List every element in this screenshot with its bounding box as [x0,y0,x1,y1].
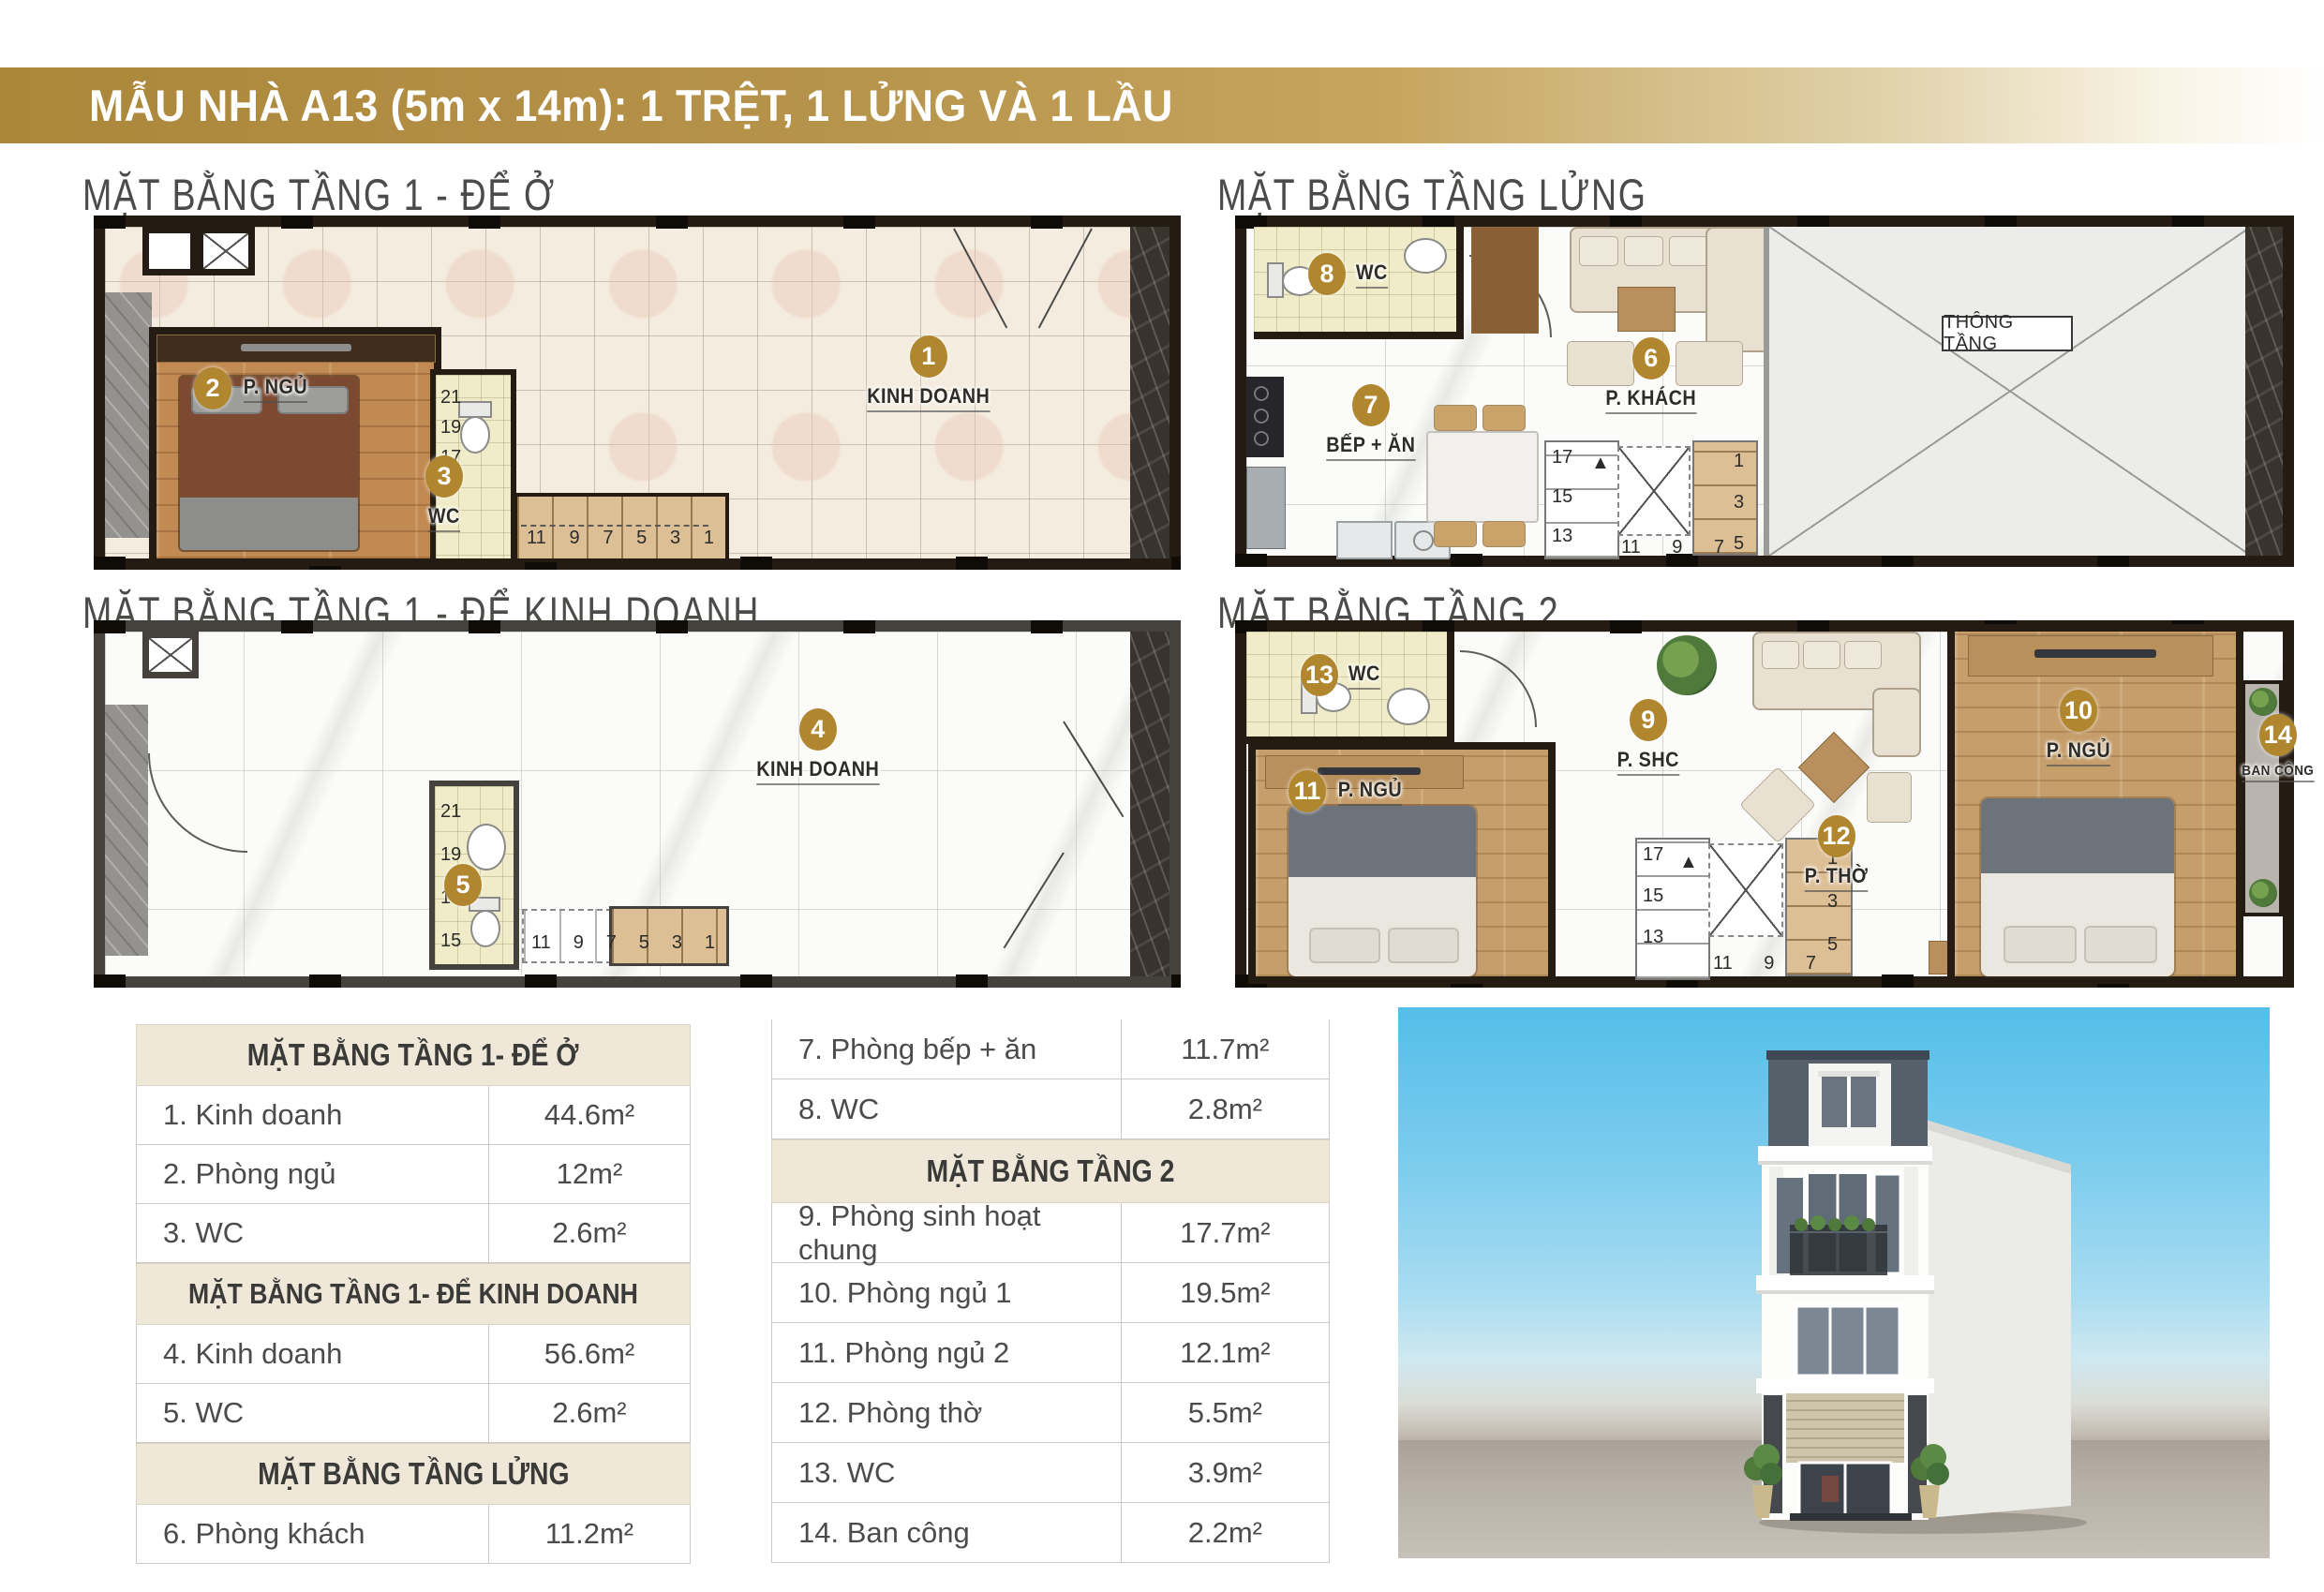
closet [156,335,436,363]
table-row: 2. Phòng ngủ 12m² [136,1145,691,1204]
stair-number: 1 [1734,452,1744,470]
table-row: 8. WC 2.8m² [771,1079,1330,1139]
stove-burner [1254,431,1269,446]
stove [1246,377,1284,457]
page: MẪU NHÀ A13 (5m x 14m): 1 TRỆT, 1 LỬNG V… [0,0,2324,1592]
door-leaf-line [1063,721,1124,817]
bed-blanket [180,498,358,550]
house-render-illustration [1398,1007,2270,1558]
stair-number: 11 [531,933,551,952]
dining-chair [1482,405,1526,431]
table-row: 14. Ban công 2.2m² [771,1503,1330,1563]
stair-number: 5 [639,933,649,952]
sofa-chaise [1872,688,1921,757]
area-table-right: 7. Phòng bếp + ăn 11.7m² 8. WC 2.8m² MẶT… [771,1019,1330,1563]
void-label: THÔNG TẦNG [1942,316,2073,351]
pouf [1867,772,1912,823]
stair-number: 13 [1643,928,1663,946]
room-area-cell: 44.6m² [488,1086,690,1144]
stair-number: 5 [1827,935,1838,954]
shaft-box-x [142,632,199,678]
room-label-living: 6 P. KHÁCH [1601,337,1702,414]
bed-pillow [1388,928,1459,963]
stair-number: 3 [1827,892,1838,911]
wardrobe [1471,227,1539,334]
wall-columns [94,620,1181,633]
stove-burner [1254,386,1269,401]
table-row: 5. WC 2.6m² [136,1384,691,1443]
room-label-wc: 3 WC [425,455,463,532]
room-number-badge: 12 [1818,815,1855,857]
section-title-mezzanine: MẶT BẰNG TẦNG LỬNG [1217,169,1754,220]
plant [2249,688,2277,716]
room-area-cell: 12.1m² [1121,1323,1329,1382]
floorplan-floor2: 171513 ▲ 135 1197 13 [1235,620,2294,988]
tv-cabinet [1968,635,2213,677]
table-section-rows: 7. Phòng bếp + ăn 11.7m² 8. WC 2.8m² [771,1019,1330,1139]
stair-number: 7 [603,528,613,547]
sofa-cushion [1669,236,1708,266]
room-area-cell: 19.5m² [1121,1263,1329,1322]
door-arc [1460,650,1537,727]
table-row: 4. Kinh doanh 56.6m² [136,1325,691,1384]
room-name-cell: 1. Kinh doanh [137,1098,488,1132]
shaft-box-x [197,227,255,275]
wall-columns [94,975,1181,988]
void-area [1764,227,2251,556]
room-number-badge: 2 [194,367,231,409]
room-name-cell: 5. WC [137,1396,488,1430]
stair-number: 5 [1734,534,1744,553]
stair-arrow-icon: ▲ [1679,853,1698,871]
room-name-cell: 2. Phòng ngủ [137,1157,488,1191]
room-label-common: 9 P. SHC [1614,699,1683,776]
dining-chair [1434,405,1477,431]
stair-numbers-bottom: 1197 [1621,538,1724,557]
room-name-cell: 3. WC [137,1216,488,1250]
stair-number: 7 [606,933,617,952]
shaft-box [142,227,197,275]
side-marble-column [2245,227,2283,556]
stair-number: 9 [574,933,584,952]
room-label-wc: 13 WC [1301,654,1382,696]
stair-numbers-bottom: 1197 [1713,954,1816,973]
room-number-badge: 13 [1301,654,1338,696]
toilet [460,416,490,454]
door-leaf-line [1004,852,1065,948]
table-row: 11. Phòng ngủ 2 12.1m² [771,1323,1330,1383]
entry-marble [105,705,148,956]
room-area-cell: 12m² [488,1145,690,1203]
table-row: 1. Kinh doanh 44.6m² [136,1086,691,1145]
table-section-rows: 4. Kinh doanh 56.6m² 5. WC 2.6m² [136,1325,691,1443]
room-area-cell: 5.5m² [1121,1383,1329,1442]
stair-number: 15 [1552,487,1572,506]
sink [1387,688,1430,725]
stair-number: 7 [1714,538,1724,557]
table-row: 6. Phòng khách 11.2m² [136,1505,691,1564]
table-section-rows: 1. Kinh doanh 44.6m² 2. Phòng ngủ 12m² 3… [136,1086,691,1263]
stair-number: 1 [705,933,715,952]
room-label-business: 4 KINH DOANH [750,708,886,785]
bed-pillow [1309,928,1380,963]
side-marble-column [1130,227,1169,558]
side-marble-column [1130,632,1169,976]
dining-chair [1482,521,1526,547]
stair-number: 7 [1806,954,1816,973]
room-name-cell: 12. Phòng thờ [772,1396,1121,1430]
room-area-cell: 2.6m² [488,1204,690,1262]
stair-numbers-right: 135 [1734,452,1744,553]
door-leaf-line [1038,229,1093,329]
stair-numbers-bottom: 1197531 [527,528,714,547]
floorplan-mezzanine: 171513 ▲ 135 1197 THÔNG TẦNG 8 WC 7 BẾP … [1235,216,2294,567]
stair-number: 15 [1643,886,1663,905]
stair-number: 3 [670,528,680,547]
table-section-header: MẶT BẰNG TẦNG 1- ĐỂ KINH DOANH [136,1263,691,1325]
plant [2249,879,2277,907]
door-arc [148,753,247,853]
table-row: 12. Phòng thờ 5.5m² [771,1383,1330,1443]
stair-number: 17 [1643,845,1663,864]
area-table-left: MẶT BẰNG TẦNG 1- ĐỂ Ở 1. Kinh doanh 44.6… [136,1024,691,1564]
house-drawing [1398,1007,2270,1558]
stair-number: 5 [636,528,647,547]
toilet [470,910,500,947]
stair-number: 9 [1672,538,1682,557]
stair-numbers-left: 171513 [1552,448,1572,545]
room-number-badge: 6 [1632,337,1670,379]
coffee-table [1798,732,1870,803]
stair-walkline [521,525,708,527]
room-label-bedroom2: 11 P. NGỦ [1289,770,1406,812]
stair-number: 11 [527,528,546,547]
stair-number: 9 [1764,954,1774,973]
table-row: 9. Phòng sinh hoạt chung 17.7m² [771,1203,1330,1263]
sofa-cushion [1803,641,1840,669]
room-area-cell: 11.7m² [1121,1019,1329,1079]
room-number-badge: 1 [910,335,947,378]
room-name-cell: 4. Kinh doanh [137,1337,488,1371]
stair-number: 11 [1621,538,1641,557]
sink [1404,238,1447,274]
wall-columns [1235,975,2294,988]
tv [2034,649,2156,658]
room-number-badge: 14 [2259,714,2297,756]
stair-number: 21 [440,388,461,407]
stair-number: 13 [1552,527,1572,545]
table-section-rows: 9. Phòng sinh hoạt chung 17.7m² 10. Phòn… [771,1203,1330,1563]
dining-chair [1434,521,1477,547]
room-area-cell: 56.6m² [488,1325,690,1383]
bed-blanket [1981,798,2174,873]
room-area-cell: 3.9m² [1121,1443,1329,1502]
room-area-cell: 2.2m² [1121,1503,1329,1562]
room-number-badge: 10 [2060,690,2097,732]
dishwasher [1336,521,1393,559]
stair-number: 3 [672,933,682,952]
stair-number: 19 [440,418,461,437]
bed-pillow [2004,926,2077,963]
room-label-business: 1 KINH DOANH [860,335,997,412]
dining-table [1426,431,1539,523]
stair-arrow-icon: ▲ [1591,454,1610,472]
stairs [517,497,725,558]
plant [1657,635,1717,695]
table-row: 13. WC 3.9m² [771,1443,1330,1503]
closet-handle [241,344,351,351]
table-section-header: MẶT BẰNG TẦNG LỬNG [136,1443,691,1505]
room-number-badge: 7 [1352,384,1390,426]
room-name-cell: 13. WC [772,1456,1121,1490]
bed [1289,806,1476,976]
room-name-cell: 9. Phòng sinh hoạt chung [772,1199,1121,1267]
bedroom1-floor [1955,632,2236,976]
stair-void [1708,843,1783,937]
wall-columns [94,216,1181,229]
room-number-badge: 4 [799,708,837,751]
stair-number: 21 [440,802,461,821]
table-row: 10. Phòng ngủ 1 19.5m² [771,1263,1330,1323]
entry-marble [105,292,152,538]
room-name-cell: 8. WC [772,1093,1121,1126]
room-area-cell: 17.7m² [1121,1203,1329,1262]
bed-blanket [1289,806,1476,877]
room-label-wc: 8 WC [1308,253,1390,295]
room-area-cell: 2.6m² [488,1384,690,1442]
title-banner: MẪU NHÀ A13 (5m x 14m): 1 TRỆT, 1 LỬNG V… [0,67,2324,143]
room-label-kitchen: 7 BẾP + ĂN [1321,384,1421,461]
room-label-bedroom1: 10 P. NGỦ [2043,690,2114,766]
room-label-balcony: 14 BAN CÔNG [2238,714,2318,782]
room-label-worship: 12 P. THỜ [1801,815,1871,892]
washer-drum [1413,530,1434,551]
stove-burner [1254,409,1269,424]
room-number-badge: 11 [1289,770,1326,812]
floorplan-floor1-live: 211917 1197531 1 KINH DOANH 2 P. NGỦ 3 W… [94,216,1181,570]
wall-columns [94,557,1181,570]
coffee-table [1617,287,1676,332]
bed [1981,798,2174,976]
room-area-cell: 2.8m² [1121,1079,1329,1138]
room-number-badge: 9 [1630,699,1667,741]
stair-number: 1 [704,528,714,547]
stair-void [1617,446,1691,536]
table-row: 7. Phòng bếp + ăn 11.7m² [771,1019,1330,1079]
table-row: 3. WC 2.6m² [136,1204,691,1263]
page-title: MẪU NHÀ A13 (5m x 14m): 1 TRỆT, 1 LỬNG V… [0,80,1173,131]
stair-numbers-bottom: 1197531 [531,933,715,952]
room-number-badge: 5 [444,864,482,906]
stair-number: 9 [569,528,579,547]
sofa-cushion [1624,236,1663,266]
sofa-cushion [1762,641,1799,669]
room-number-badge: 8 [1308,253,1346,295]
stair-number: 17 [1552,448,1572,467]
stair-number: 3 [1734,493,1744,512]
room-number-badge: 3 [425,455,463,498]
room-name-cell: 6. Phòng khách [137,1517,488,1551]
room-name-cell: 10. Phòng ngủ 1 [772,1276,1121,1310]
table-section-header: MẶT BẰNG TẦNG 2 [771,1139,1330,1203]
stair-number: 15 [440,931,461,950]
kitchen-sink [1246,467,1286,549]
sofa-cushion [1844,641,1882,669]
table-section-header: MẶT BẰNG TẦNG 1- ĐỂ Ở [136,1024,691,1086]
stair-number: 11 [1713,954,1733,973]
room-name-cell: 11. Phòng ngủ 2 [772,1336,1121,1370]
floorplan-floor1-business: 21191715 1197531 4 KINH DOANH 5 [94,620,1181,988]
stair-numbers-left: 171513 [1643,845,1663,946]
room-label-wc: 5 [444,864,482,906]
room-label-bedroom: 2 P. NGỦ [194,367,311,409]
table-section-rows: 6. Phòng khách 11.2m² [136,1505,691,1564]
room-name-cell: 14. Ban công [772,1516,1121,1550]
bed-pillow [2084,926,2157,963]
room-area-cell: 11.2m² [488,1505,690,1563]
sofa-cushion [1579,236,1618,266]
door-leaf-line [953,229,1007,329]
section-title-floor1-live: MẶT BẰNG TẦNG 1 - ĐỂ Ở [82,169,674,220]
stair-number: 19 [440,845,461,864]
room-name-cell: 7. Phòng bếp + ăn [772,1033,1121,1066]
